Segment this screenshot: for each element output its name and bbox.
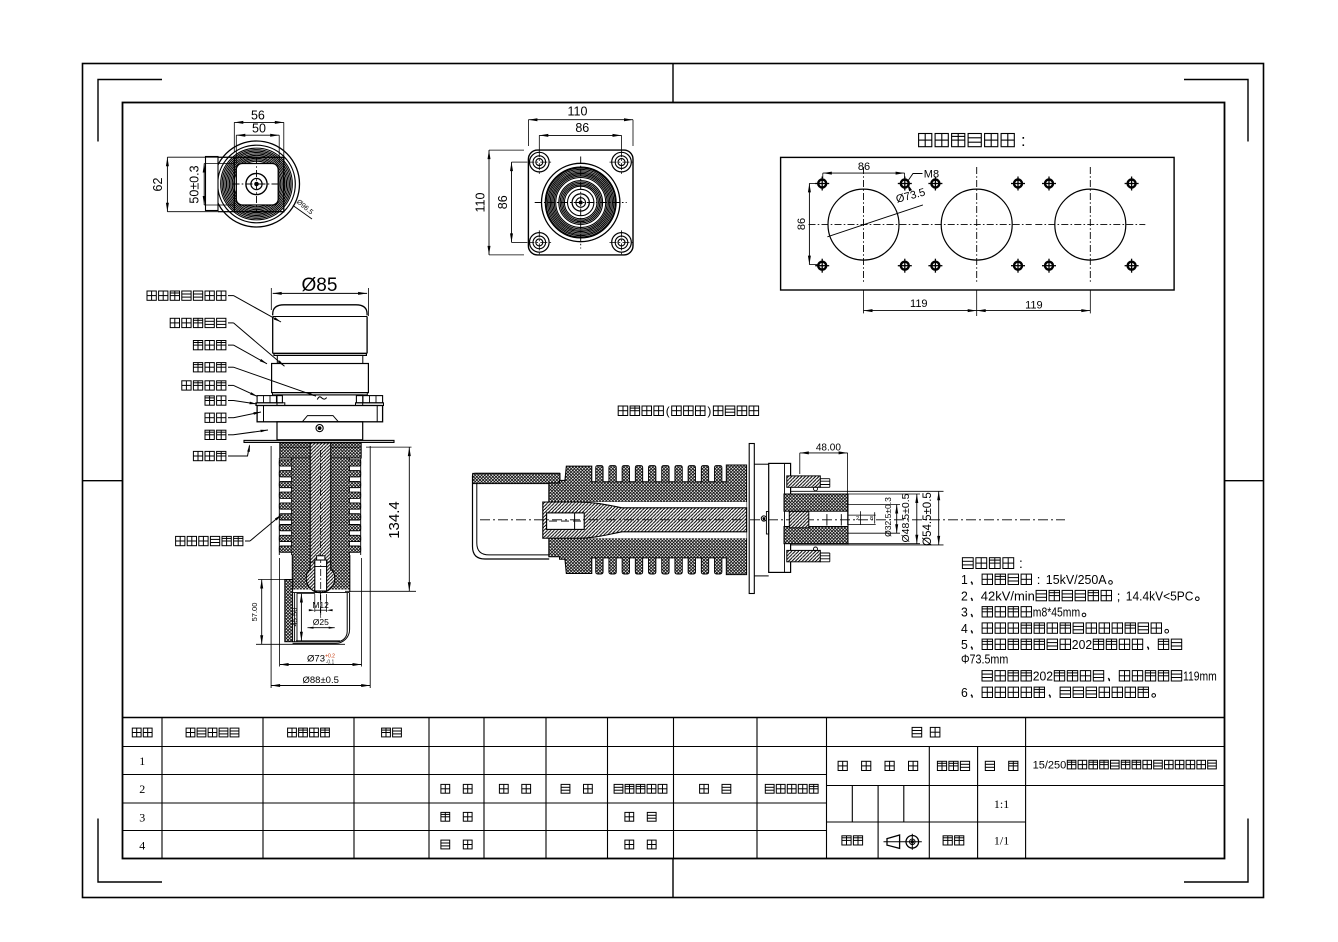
svg-text::: : — [1019, 556, 1023, 571]
svg-text:1/1: 1/1 — [994, 834, 1009, 848]
svg-text:1: 1 — [961, 572, 968, 587]
svg-text:134.4: 134.4 — [386, 501, 403, 539]
svg-text:2: 2 — [961, 588, 968, 603]
svg-text:Ø73: Ø73 — [307, 654, 325, 665]
svg-text:2: 2 — [139, 782, 145, 796]
svg-text:202: 202 — [1072, 637, 1092, 652]
svg-text:4: 4 — [961, 621, 968, 636]
svg-text:Ø54.5±0.5: Ø54.5±0.5 — [922, 492, 934, 546]
svg-text:8: 8 — [870, 516, 873, 522]
svg-text:Φ73.5mm: Φ73.5mm — [961, 652, 1008, 667]
svg-text:(: ( — [666, 404, 670, 418]
svg-text:56: 56 — [251, 109, 265, 123]
svg-text:m8*45mm: m8*45mm — [1033, 605, 1080, 620]
svg-text:86: 86 — [575, 121, 589, 135]
svg-text:Ø88±0.5: Ø88±0.5 — [303, 675, 339, 686]
svg-text:15kV/250A: 15kV/250A — [1046, 572, 1107, 587]
svg-text:48.00: 48.00 — [816, 443, 841, 454]
svg-text:;: ; — [1117, 588, 1121, 603]
svg-text:14.4kV<5PC: 14.4kV<5PC — [1126, 588, 1194, 603]
svg-text:45.50: 45.50 — [290, 608, 299, 627]
svg-text:5: 5 — [961, 637, 968, 652]
svg-text:3: 3 — [139, 810, 145, 824]
svg-text:86: 86 — [796, 218, 808, 230]
svg-text:202: 202 — [1033, 669, 1053, 684]
svg-text:42kV/min: 42kV/min — [981, 588, 1035, 603]
svg-text:119: 119 — [910, 298, 928, 310]
svg-text:110: 110 — [568, 105, 588, 119]
svg-text:86: 86 — [858, 161, 870, 173]
svg-text:Ø32.5±0.3: Ø32.5±0.3 — [883, 497, 893, 537]
svg-text:M8: M8 — [924, 168, 939, 180]
svg-text:3: 3 — [961, 605, 968, 620]
svg-text:50: 50 — [252, 122, 266, 136]
svg-text:1: 1 — [139, 754, 145, 768]
svg-text::: : — [1021, 132, 1026, 150]
svg-text:62: 62 — [151, 178, 165, 192]
svg-text:50±0.3: 50±0.3 — [188, 165, 202, 203]
svg-text:2: 2 — [856, 516, 859, 522]
svg-text:110: 110 — [473, 192, 487, 212]
svg-text:1:1: 1:1 — [994, 797, 1009, 811]
svg-text:119: 119 — [1025, 300, 1043, 312]
svg-text:Ø48.5±0.5: Ø48.5±0.5 — [900, 493, 912, 542]
svg-text::: : — [1037, 572, 1041, 587]
svg-text:): ) — [707, 404, 711, 418]
svg-text:4: 4 — [139, 839, 145, 853]
svg-text:57.00: 57.00 — [250, 603, 259, 622]
svg-text:86: 86 — [496, 195, 510, 209]
svg-text:119mm: 119mm — [1183, 669, 1217, 684]
svg-text:Ø85: Ø85 — [302, 275, 338, 296]
svg-text:6: 6 — [961, 685, 968, 700]
svg-text:Ø25: Ø25 — [313, 617, 329, 627]
svg-text:15/250: 15/250 — [1033, 760, 1067, 772]
